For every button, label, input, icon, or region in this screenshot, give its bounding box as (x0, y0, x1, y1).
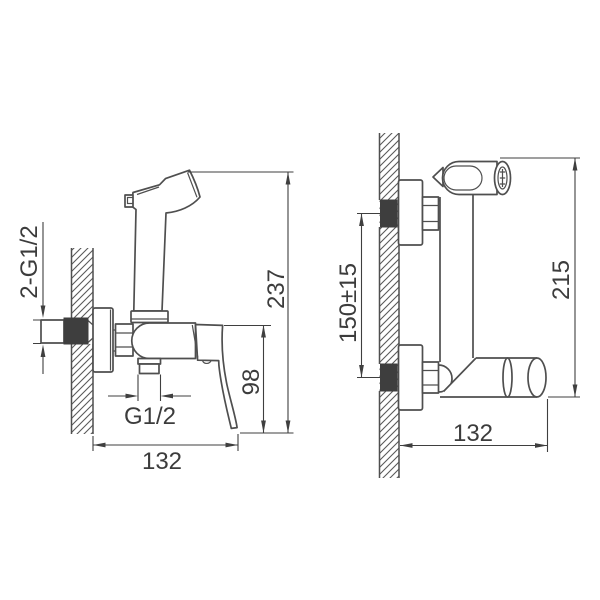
escutcheon-plate-bottom (399, 345, 423, 410)
hand-shower (125, 170, 200, 311)
cradle-cup (131, 311, 168, 323)
arrow-up-icon (573, 158, 578, 171)
eccentric-connector-bottom (381, 364, 398, 391)
dim-label-total-height-right: 215 (548, 260, 575, 300)
hex-nut (116, 324, 134, 356)
technical-drawing-page: 2-G1/2 G1/2 132 98 237 (0, 0, 600, 600)
dimension-inlet-spacing: 150±15 (335, 214, 381, 378)
dim-label-outlet-thread: G1/2 (124, 403, 176, 430)
holder-rim (503, 358, 512, 397)
dimension-connection-thread: 2-G1/2 (16, 222, 45, 374)
wall-hatch (380, 133, 400, 478)
arrow-up-icon (41, 345, 46, 358)
dim-label-total-height-left: 237 (263, 269, 290, 309)
arrow-right-icon (126, 394, 139, 399)
mixer-body (132, 323, 196, 359)
arrow-right-icon (226, 443, 239, 448)
dimension-depth-left: 132 (93, 434, 238, 475)
lever-shape (196, 325, 238, 429)
wall-section-right (380, 133, 400, 478)
hose-outlet (138, 359, 161, 374)
arrow-down-icon (359, 365, 364, 378)
body-capsule (132, 323, 196, 359)
holder-end-cap (528, 358, 546, 397)
dimension-outlet-thread: G1/2 (108, 375, 191, 431)
hex-nut-top (423, 197, 439, 230)
arrow-down-icon (261, 421, 266, 434)
dim-label-inlet-spacing: 150±15 (335, 263, 362, 343)
grip-end-texture (500, 169, 505, 187)
hex-nut-bottom (423, 362, 439, 393)
outlet-transition (440, 358, 508, 397)
dim-lines (108, 375, 191, 402)
arrow-right-icon (535, 443, 548, 448)
arrow-down-icon (573, 385, 578, 398)
arrow-down-icon (286, 421, 291, 434)
arrow-left-icon (161, 394, 174, 399)
lever-handle-profile (433, 162, 511, 195)
shower-button (125, 195, 133, 207)
hand-shower-body (132, 170, 200, 311)
supply-connection (41, 318, 88, 344)
arrow-up-icon (359, 214, 364, 227)
body-fill (440, 196, 473, 359)
eccentric-connector (64, 318, 88, 344)
wall-flange-assembly (93, 308, 133, 372)
dim-label-connection-thread: 2-G1/2 (16, 225, 43, 298)
dim-label-depth-right: 132 (453, 420, 493, 447)
eccentric-connector-top (381, 200, 398, 227)
lever-tip (433, 168, 443, 187)
escutcheon-plate-top (399, 180, 423, 245)
supply-pipe-end (41, 320, 64, 343)
shower-cradle (131, 311, 168, 323)
left-view: 2-G1/2 G1/2 132 98 237 (16, 170, 294, 475)
arrow-up-icon (286, 172, 291, 185)
arrow-up-icon (261, 325, 266, 338)
dim-label-handle-height: 98 (238, 369, 265, 396)
arrow-left-icon (93, 443, 106, 448)
mixer-body-profile (440, 195, 473, 363)
dim-label-depth-left: 132 (142, 448, 182, 475)
faucet-technical-drawing: 2-G1/2 G1/2 132 98 237 (0, 0, 600, 600)
right-view: 150±15 215 132 (335, 133, 580, 478)
outlet-thread (140, 364, 160, 374)
arrow-down-icon (41, 306, 46, 319)
arrow-left-icon (400, 443, 413, 448)
lever-handle (192, 325, 237, 429)
